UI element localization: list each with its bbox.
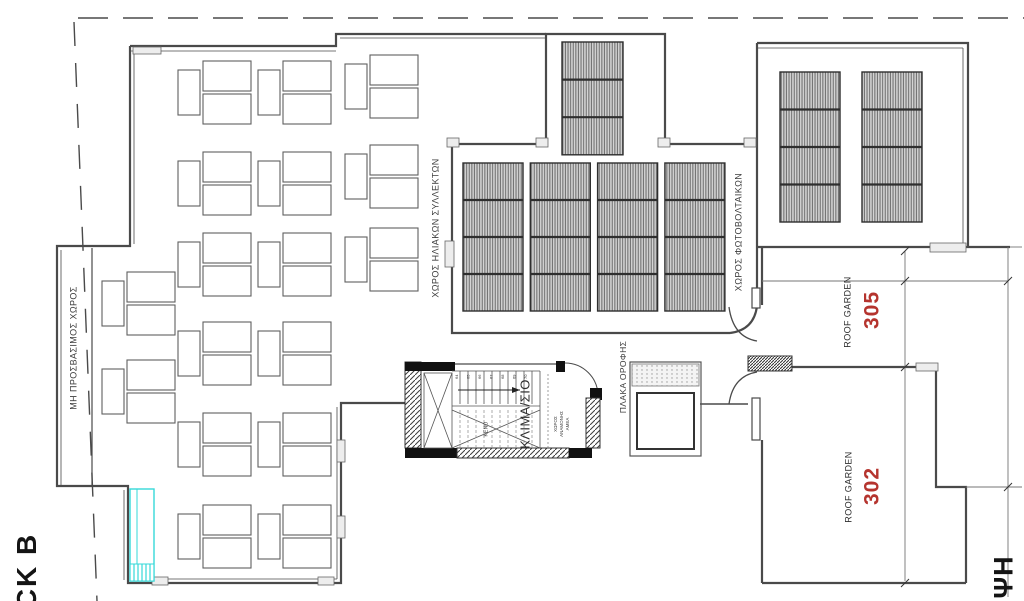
roof-garden-305-number: 305 — [862, 291, 883, 329]
sunbed-group — [345, 55, 418, 118]
step-number: 67 — [489, 374, 494, 379]
void-label: ΚΕΝΟ — [485, 422, 490, 437]
sunbed-group — [178, 61, 251, 124]
stair-step-numbers: 64656667686970 — [454, 374, 528, 379]
sunbed-group — [178, 505, 251, 568]
non-accessible-area-label: ΜΗ ΠΡΟΣΒΑΣΙΜΟΣ ΧΩΡΟΣ — [70, 286, 79, 410]
step-number: 64 — [454, 374, 459, 379]
stairwell-label: ΚΛΙΜΑ/ΣΙΟ — [519, 379, 532, 448]
step-number: 70 — [523, 374, 528, 379]
sunbed-group — [258, 322, 331, 385]
roof-garden-305-label: ROOF GARDEN — [844, 276, 853, 347]
dimension-lines — [762, 247, 1022, 597]
sunbed-group — [258, 413, 331, 476]
roof-slab-label: ΠΛΑΚΑ ΟΡΟΦΗΣ — [619, 341, 628, 414]
sunbed-group — [178, 152, 251, 215]
wall-pilasters — [133, 47, 966, 585]
sunbed-group — [258, 233, 331, 296]
sunbed-group — [102, 360, 175, 423]
step-number: 65 — [466, 374, 471, 379]
sunbed-group — [178, 233, 251, 296]
cyan-ladder — [130, 489, 154, 581]
step-number: 66 — [477, 374, 482, 379]
block-title-partial: CK B — [13, 533, 41, 601]
step-number: 69 — [512, 374, 517, 379]
amea-waiting-label-line3: ΑΜΕΑ — [566, 418, 571, 431]
amea-waiting-label-line1: ΧΩΡΟΣ — [554, 416, 559, 432]
amea-waiting-label-line2: ΑΝΑΜΟΝΗΣ — [560, 411, 565, 437]
elevator-shaft — [630, 362, 701, 456]
sunbed-group — [258, 152, 331, 215]
sunbed-group — [178, 413, 251, 476]
roof-garden-302-number: 302 — [862, 467, 883, 505]
bay-panel-stack — [562, 42, 623, 155]
floor-plan-page: 64656667686970 ΧΩΡΟΣ ΗΛΙΑΚΩΝ ΣΥΛΛΕΚΤΩΝ Χ… — [0, 0, 1024, 601]
sunbed-group — [258, 61, 331, 124]
sunbed-group — [178, 322, 251, 385]
step-number: 68 — [500, 374, 505, 379]
stair-block: 64656667686970 — [405, 361, 602, 458]
stair-direction-arrow — [458, 387, 520, 393]
sunbed-group — [102, 272, 175, 335]
curved-doorway — [729, 288, 792, 440]
sunbed-group — [345, 145, 418, 208]
solar-collector-field — [463, 163, 725, 311]
roof-garden-302-label: ROOF GARDEN — [845, 451, 854, 522]
sunbed-groups — [102, 55, 418, 568]
plan-title-partial: ΨΗ — [991, 555, 1018, 598]
solar-and-pv-panels — [463, 42, 922, 311]
sunbed-group — [345, 228, 418, 291]
sunbed-group — [258, 505, 331, 568]
photovoltaic-field — [780, 72, 922, 222]
solar-collectors-area-label: ΧΩΡΟΣ ΗΛΙΑΚΩΝ ΣΥΛΛΕΚΤΩΝ — [432, 158, 441, 297]
photovoltaics-area-label: ΧΩΡΟΣ ΦΩΤΟΒΟΛΤΑΙΚΩΝ — [735, 173, 744, 291]
